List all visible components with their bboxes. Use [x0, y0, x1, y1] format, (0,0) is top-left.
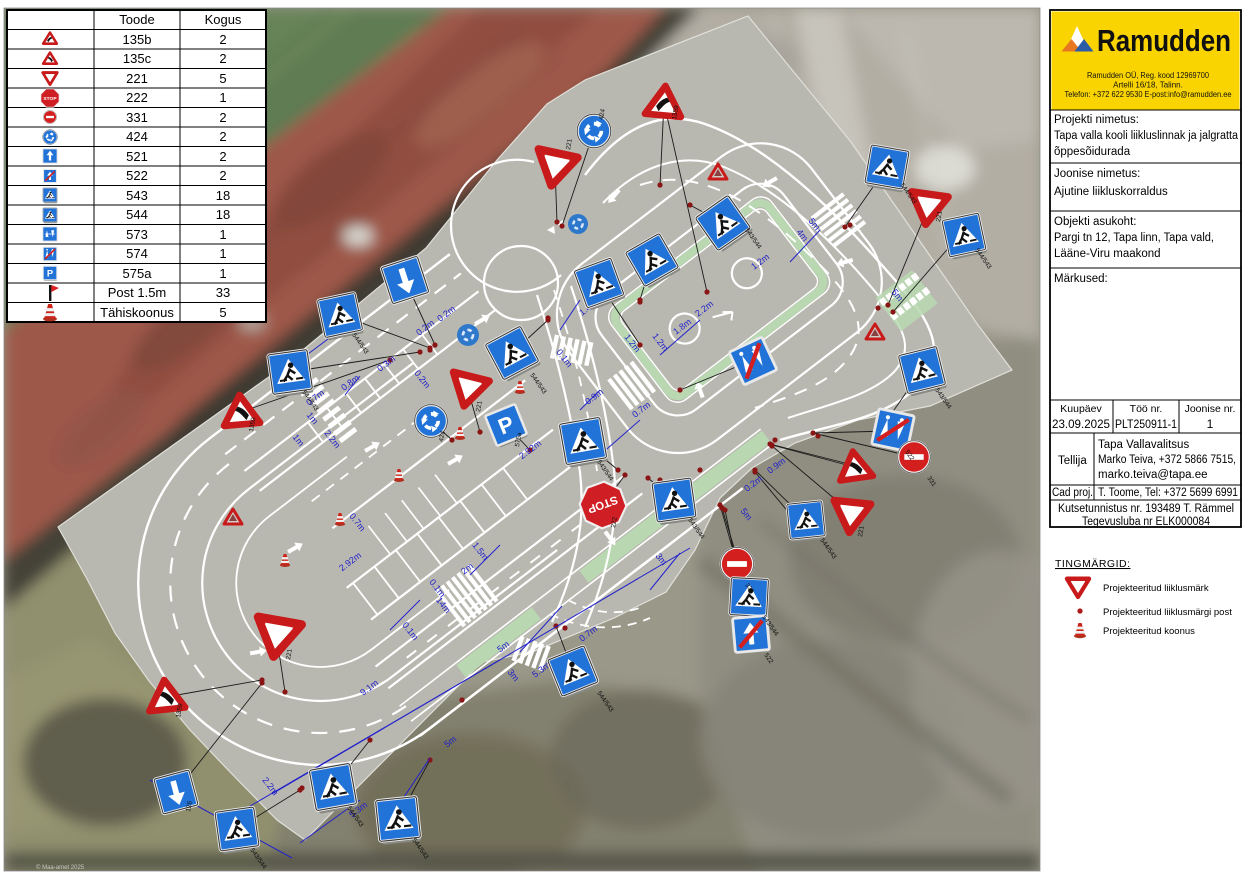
- svg-text:Projekti nimetus:: Projekti nimetus:: [1054, 114, 1139, 126]
- svg-text:544: 544: [126, 207, 148, 222]
- svg-text:5: 5: [219, 305, 226, 320]
- svg-text:331: 331: [126, 110, 148, 125]
- svg-text:Ramudden: Ramudden: [1097, 23, 1231, 58]
- svg-text:TINGMÄRGID:: TINGMÄRGID:: [1055, 558, 1131, 570]
- svg-text:Objekti asukoht:: Objekti asukoht:: [1054, 216, 1136, 228]
- svg-text:23.09.2025: 23.09.2025: [1052, 417, 1110, 431]
- svg-text:1: 1: [219, 266, 226, 281]
- svg-text:543: 543: [126, 188, 148, 203]
- svg-text:Tellija: Tellija: [1058, 455, 1087, 467]
- svg-text:18: 18: [216, 188, 230, 203]
- svg-text:Post 1.5m: Post 1.5m: [108, 285, 167, 300]
- svg-text:Tapa valla kooli liikluslinnak: Tapa valla kooli liikluslinnak ja jalgra…: [1054, 130, 1239, 142]
- svg-text:Ajutine liikluskorraldus: Ajutine liikluskorraldus: [1054, 186, 1168, 198]
- svg-text:5: 5: [219, 71, 226, 86]
- svg-text:Projekteeritud liiklusmärk: Projekteeritud liiklusmärk: [1103, 583, 1209, 594]
- svg-text:Kuupäev: Kuupäev: [1060, 403, 1102, 415]
- svg-text:33: 33: [216, 285, 230, 300]
- svg-text:221: 221: [126, 71, 148, 86]
- svg-text:Pargi tn 12, Tapa linn, Tapa v: Pargi tn 12, Tapa linn, Tapa vald,: [1054, 232, 1214, 244]
- svg-text:135c: 135c: [123, 51, 152, 66]
- svg-text:424: 424: [126, 129, 148, 144]
- svg-text:1: 1: [219, 246, 226, 261]
- svg-text:Telefon: +372 622 9530 E-post: Telefon: +372 622 9530 E-post:info@ramud…: [1065, 90, 1233, 99]
- svg-text:Ramudden OÜ, Reg. kood 1296970: Ramudden OÜ, Reg. kood 12969700: [1087, 71, 1210, 80]
- svg-text:PLT250911-1: PLT250911-1: [1115, 417, 1177, 431]
- svg-text:18: 18: [216, 207, 230, 222]
- svg-text:Projekteeritud liiklusmärgi po: Projekteeritud liiklusmärgi post: [1103, 607, 1232, 618]
- svg-text:222: 222: [126, 90, 148, 105]
- svg-text:marko.teiva@tapa.ee: marko.teiva@tapa.ee: [1098, 469, 1207, 481]
- svg-text:Töö nr.: Töö nr.: [1130, 403, 1163, 415]
- svg-text:Cad proj.: Cad proj.: [1052, 487, 1093, 499]
- svg-text:Joonise nimetus:: Joonise nimetus:: [1054, 168, 1140, 180]
- svg-text:573: 573: [126, 227, 148, 242]
- svg-text:Kutsetunnistus nr. 193489 T. R: Kutsetunnistus nr. 193489 T. Rämmel: [1058, 503, 1234, 515]
- svg-text:Märkused:: Märkused:: [1054, 273, 1108, 285]
- svg-text:Tegevusluba nr ELK000084: Tegevusluba nr ELK000084: [1082, 516, 1211, 528]
- svg-text:Tähiskoonus: Tähiskoonus: [100, 305, 174, 320]
- svg-text:Projekteeritud koonus: Projekteeritud koonus: [1103, 626, 1195, 637]
- svg-text:T. Toome, Tel: +372 5699 6991: T. Toome, Tel: +372 5699 6991: [1098, 487, 1238, 499]
- svg-text:Joonise nr.: Joonise nr.: [1185, 403, 1236, 415]
- svg-text:Toode: Toode: [119, 12, 154, 27]
- svg-text:Artelli 16/18, Talinn.: Artelli 16/18, Talinn.: [1113, 81, 1183, 90]
- svg-text:1: 1: [219, 227, 226, 242]
- svg-text:2: 2: [219, 110, 226, 125]
- svg-text:2: 2: [219, 168, 226, 183]
- svg-text:2: 2: [219, 32, 226, 47]
- svg-text:574: 574: [126, 246, 148, 261]
- svg-text:Kogus: Kogus: [205, 12, 242, 27]
- svg-text:Marko Teiva, +372 5866 7515,: Marko Teiva, +372 5866 7515,: [1098, 454, 1236, 466]
- svg-text:575a: 575a: [123, 266, 153, 281]
- svg-text:521: 521: [126, 149, 148, 164]
- svg-text:© Maa-amet 2025: © Maa-amet 2025: [36, 864, 85, 871]
- svg-text:2: 2: [219, 51, 226, 66]
- svg-text:2: 2: [219, 149, 226, 164]
- svg-text:522: 522: [126, 168, 148, 183]
- svg-text:2: 2: [219, 129, 226, 144]
- svg-text:Lääne-Viru maakond: Lääne-Viru maakond: [1054, 248, 1161, 260]
- svg-text:õppesõidurada: õppesõidurada: [1054, 146, 1131, 158]
- svg-text:1: 1: [1207, 417, 1214, 431]
- svg-text:Tapa Vallavalitsus: Tapa Vallavalitsus: [1098, 439, 1189, 451]
- svg-text:135b: 135b: [123, 32, 152, 47]
- svg-text:1: 1: [219, 90, 226, 105]
